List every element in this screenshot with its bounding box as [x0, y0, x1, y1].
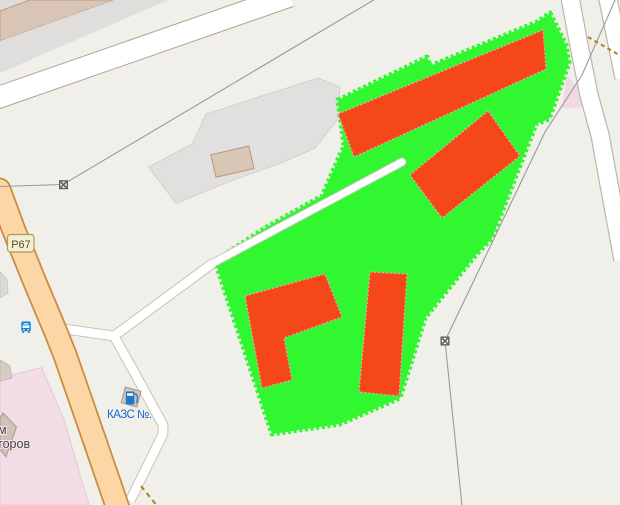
svg-text:м: м	[0, 423, 7, 437]
svg-text:КАЗС №.: КАЗС №.	[107, 409, 152, 421]
svg-text:Р67: Р67	[11, 239, 31, 251]
svg-text:торов: торов	[0, 437, 30, 451]
